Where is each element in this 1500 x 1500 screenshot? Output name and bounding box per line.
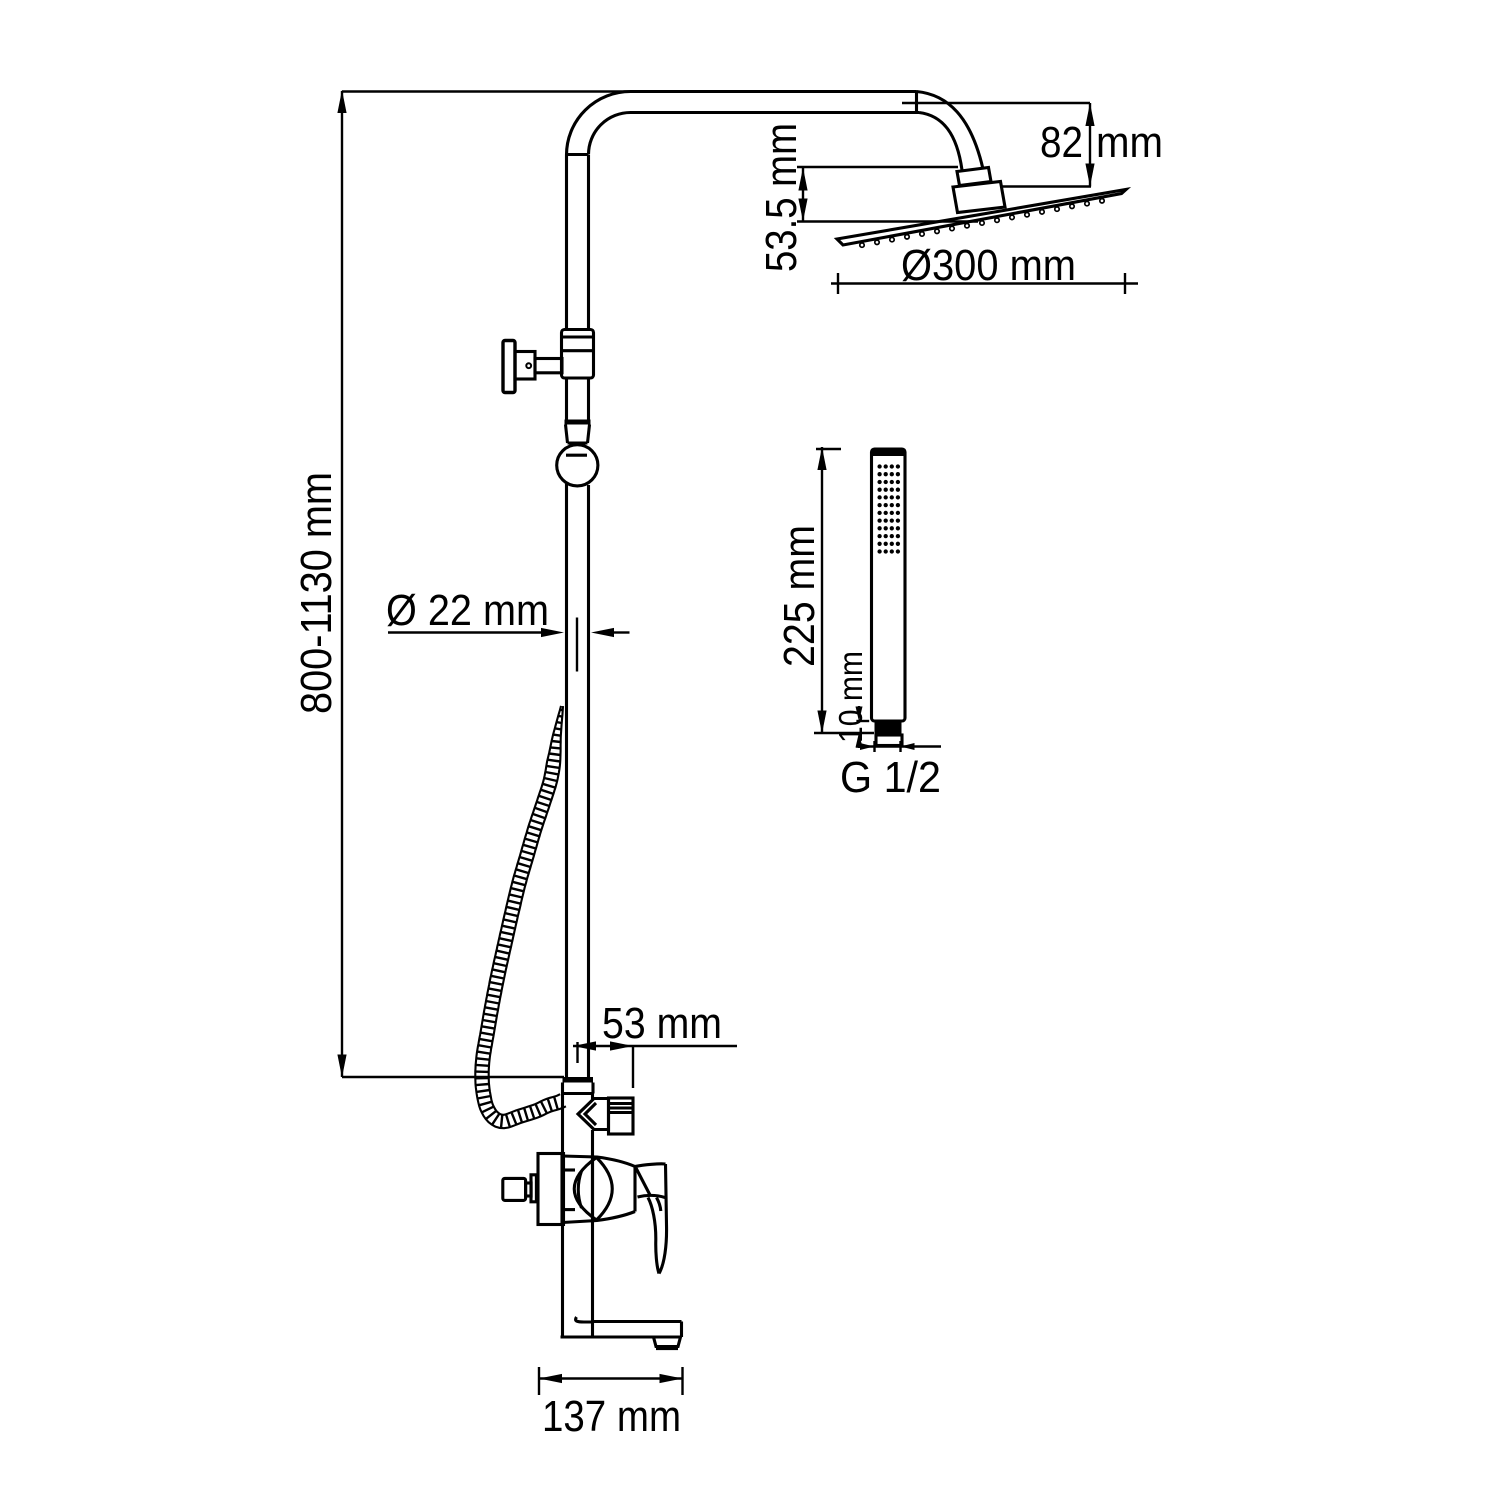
- svg-text:82: 82: [1040, 118, 1083, 167]
- svg-text:10 mm: 10 mm: [832, 651, 869, 743]
- svg-text:G 1/2: G 1/2: [840, 753, 941, 802]
- svg-text:53 mm: 53 mm: [602, 999, 722, 1048]
- svg-text:225 mm: 225 mm: [775, 525, 824, 667]
- svg-text:Ø300 mm: Ø300 mm: [901, 241, 1076, 290]
- svg-text:53.5 mm: 53.5 mm: [757, 123, 806, 272]
- svg-text:mm: mm: [1096, 118, 1163, 167]
- svg-text:800-1130 mm: 800-1130 mm: [292, 472, 341, 714]
- svg-text:137 mm: 137 mm: [542, 1392, 681, 1441]
- svg-text:Ø 22 mm: Ø 22 mm: [386, 586, 549, 635]
